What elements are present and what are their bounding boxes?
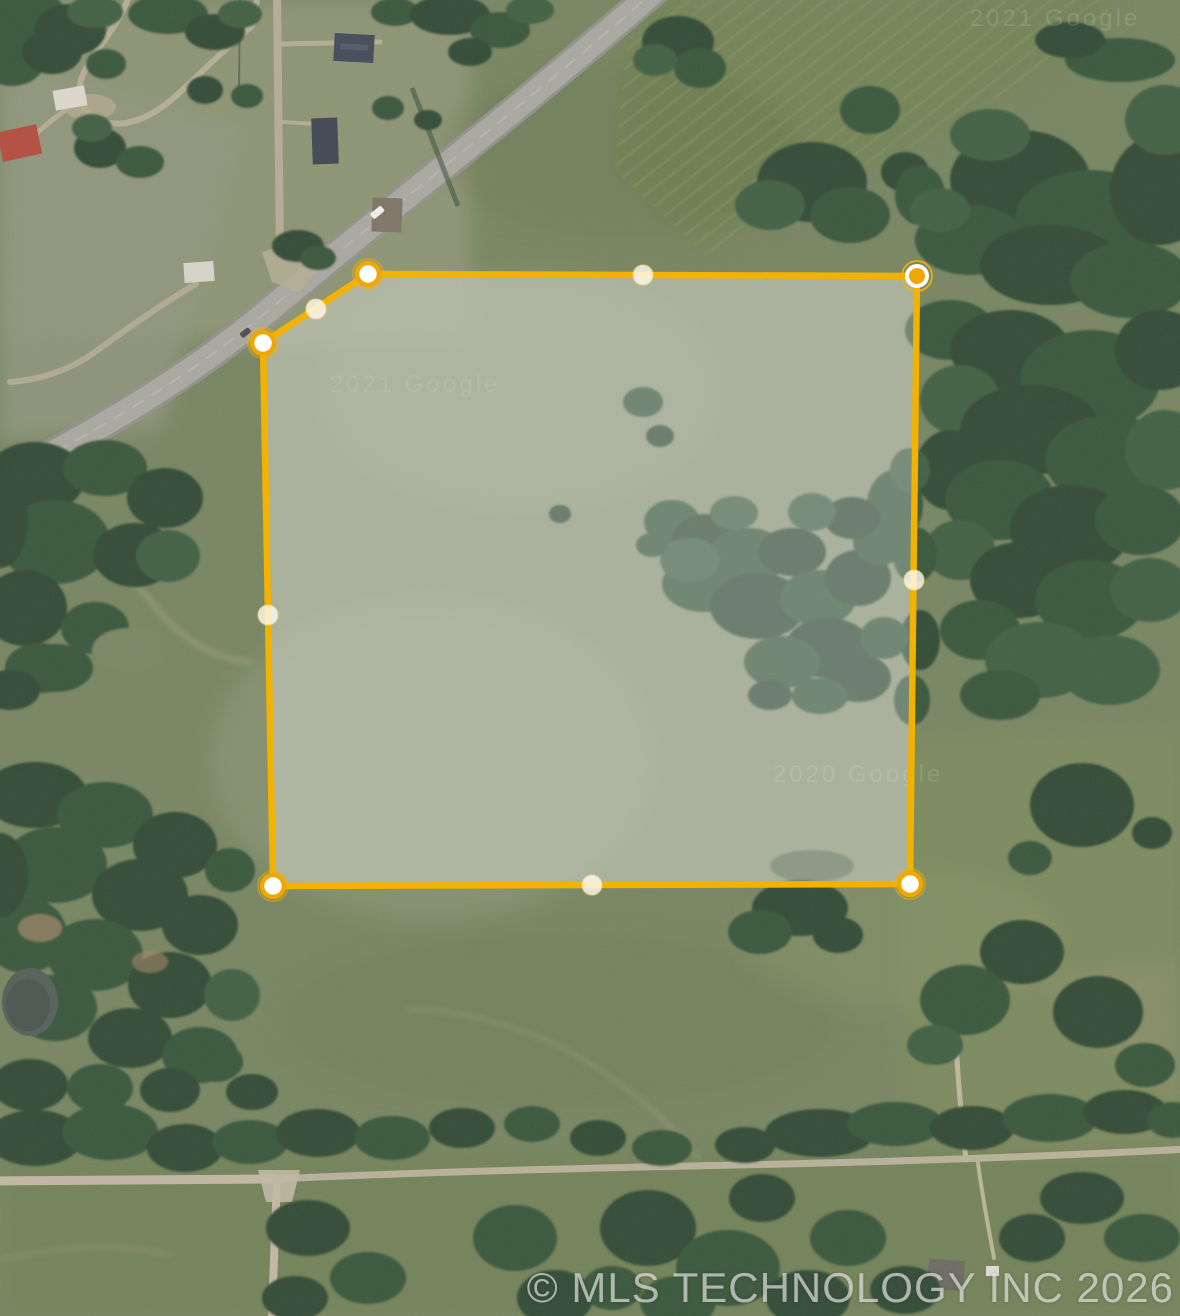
parcel-vertex-handle-selected[interactable] (902, 261, 932, 291)
parcel-vertex-handle[interactable] (895, 869, 925, 899)
parcel-vertex-handle[interactable] (353, 259, 383, 289)
parcel-midpoint-handle[interactable] (633, 265, 653, 285)
parcel-midpoint-handle[interactable] (306, 299, 326, 319)
parcel-midpoint-handle[interactable] (582, 875, 602, 895)
parcel-midpoint-handle[interactable] (904, 570, 924, 590)
parcel-vertex-handle[interactable] (258, 871, 288, 901)
parcel-vertex-handle[interactable] (248, 328, 278, 358)
parcel-midpoint-handle[interactable] (258, 605, 278, 625)
satellite-map[interactable]: 2021 Google2021 Google2020 Google (0, 0, 1180, 1316)
map-canvas[interactable]: 2021 Google2021 Google2020 Google © MLS … (0, 0, 1180, 1316)
image-grain (0, 0, 1180, 1316)
